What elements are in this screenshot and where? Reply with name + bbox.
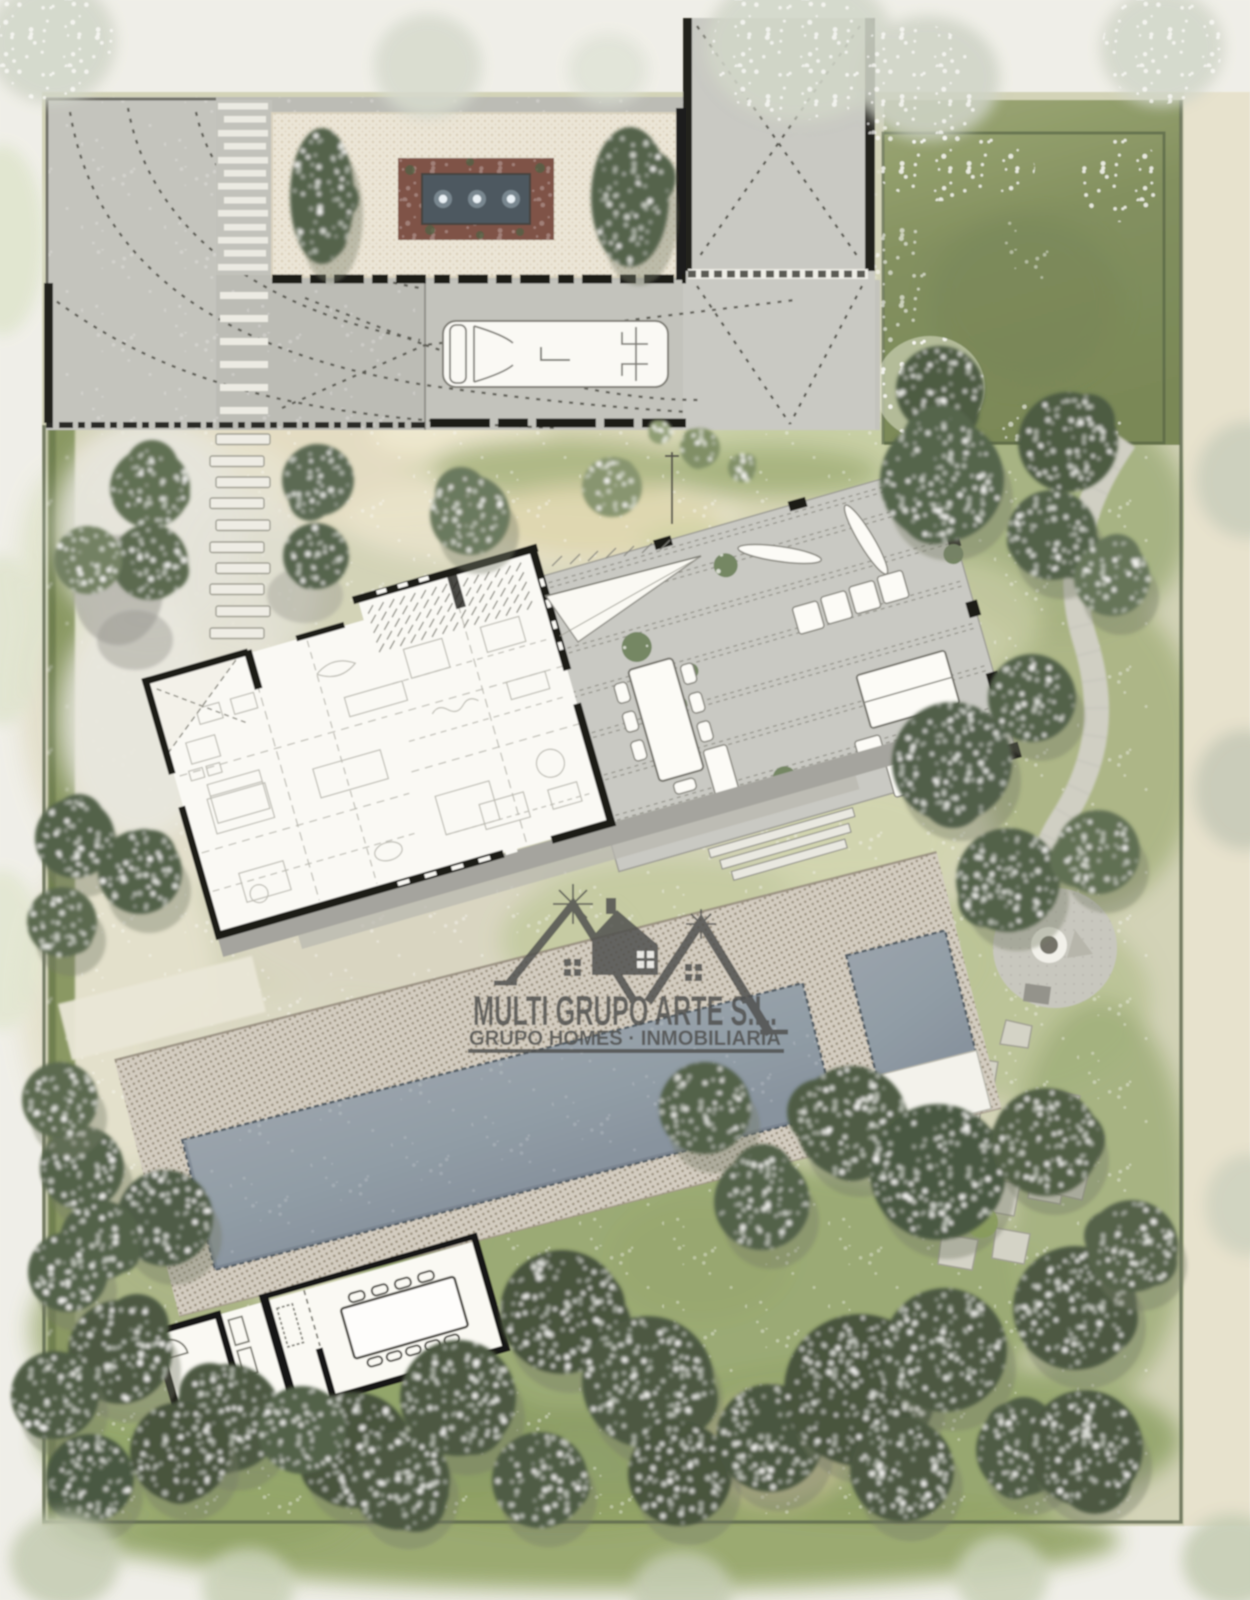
svg-text:GRUPO HOMES · INMOBILIARIA: GRUPO HOMES · INMOBILIARIA: [469, 1026, 781, 1050]
